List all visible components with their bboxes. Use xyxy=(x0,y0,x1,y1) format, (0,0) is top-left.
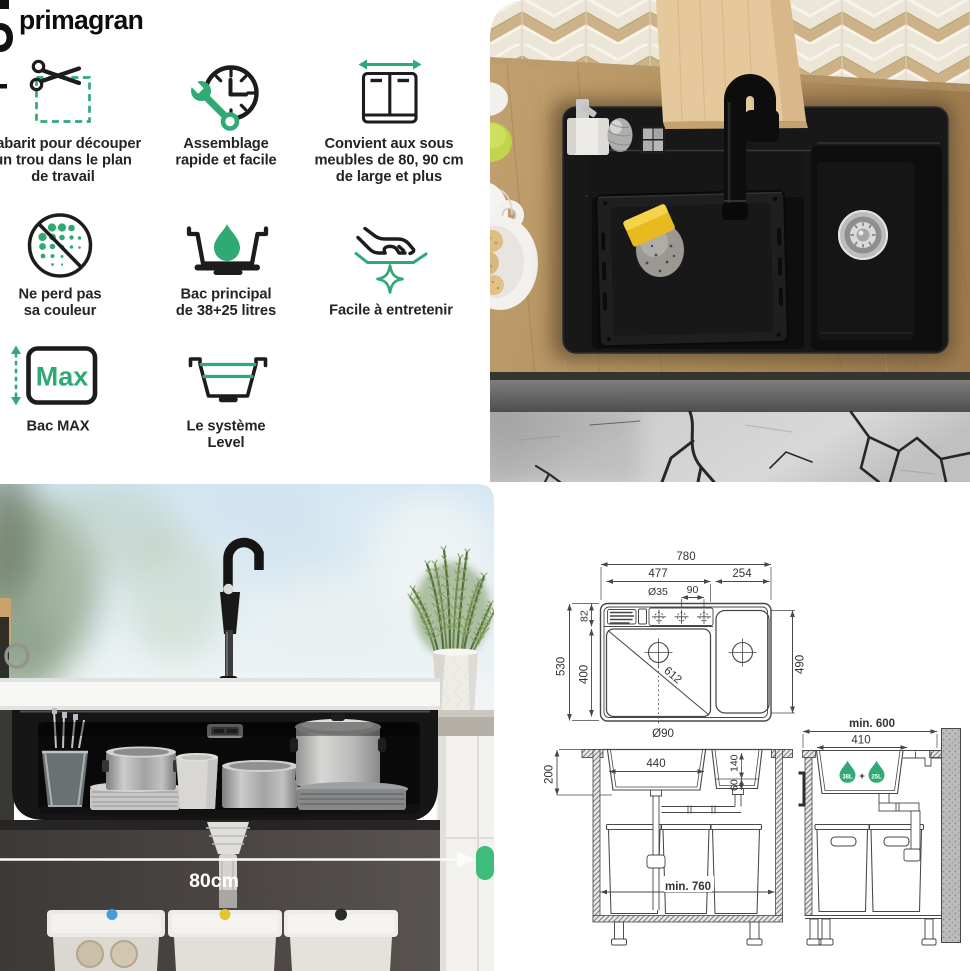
svg-text:38L: 38L xyxy=(842,775,853,781)
svg-text:80cm: 80cm xyxy=(189,870,239,892)
svg-text:primagran: primagran xyxy=(19,5,143,35)
svg-text:un trou dans le plan: un trou dans le plan xyxy=(0,153,132,169)
svg-text:490: 490 xyxy=(795,655,807,674)
svg-text:530: 530 xyxy=(556,657,568,676)
svg-text:Ø35: Ø35 xyxy=(648,586,668,598)
svg-text:90: 90 xyxy=(687,584,699,596)
svg-text:440: 440 xyxy=(646,758,665,770)
svg-text:Max: Max xyxy=(36,362,89,392)
svg-text:140: 140 xyxy=(729,754,741,772)
svg-text:254: 254 xyxy=(732,568,752,580)
svg-text:410: 410 xyxy=(851,735,870,747)
svg-text:477: 477 xyxy=(648,568,667,580)
svg-text:Facile à entretenir: Facile à entretenir xyxy=(329,303,453,319)
svg-text:min. 600: min. 600 xyxy=(849,718,895,730)
svg-text:25L: 25L xyxy=(871,775,882,781)
svg-text:60: 60 xyxy=(729,779,741,791)
svg-text:200: 200 xyxy=(544,765,556,784)
svg-text:Bac MAX: Bac MAX xyxy=(27,419,90,435)
svg-text:de travail: de travail xyxy=(31,169,95,185)
svg-text:Ø90: Ø90 xyxy=(652,728,674,740)
svg-text:82: 82 xyxy=(579,610,591,622)
svg-text:780: 780 xyxy=(676,551,695,563)
svg-text:meubles de 80, 90 cm: meubles de 80, 90 cm xyxy=(314,153,463,169)
svg-text:de 38+25 litres: de 38+25 litres xyxy=(176,303,276,319)
svg-text:de large et plus: de large et plus xyxy=(336,169,442,185)
svg-text:sa couleur: sa couleur xyxy=(24,303,97,319)
svg-text:Le système: Le système xyxy=(186,419,265,435)
svg-text:400: 400 xyxy=(579,665,591,684)
svg-text:rapide et facile: rapide et facile xyxy=(175,153,276,169)
svg-text:Level: Level xyxy=(207,435,244,451)
svg-text:Convient aux sous: Convient aux sous xyxy=(325,136,454,152)
svg-text:min. 760: min. 760 xyxy=(665,881,711,893)
svg-text:Assemblage: Assemblage xyxy=(183,136,269,152)
svg-text:Bac principal: Bac principal xyxy=(181,287,272,303)
svg-text:Ne perd pas: Ne perd pas xyxy=(19,287,102,303)
svg-text:+: + xyxy=(859,771,865,782)
svg-text:Gabarit pour découper: Gabarit pour découper xyxy=(0,136,141,152)
